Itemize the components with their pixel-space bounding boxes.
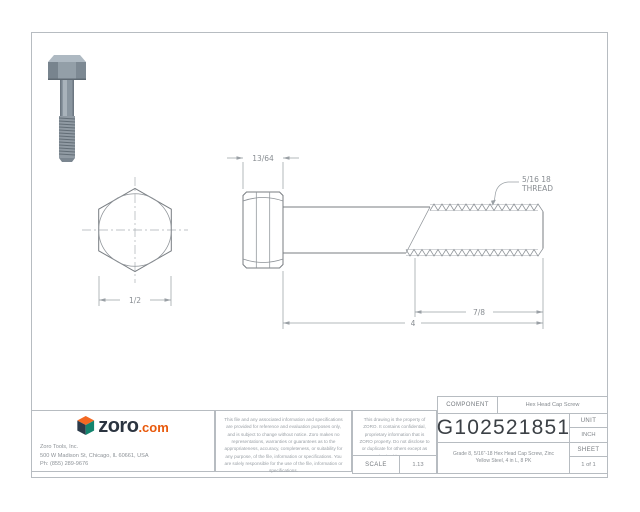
thread-callout-line1: 5/16 18	[522, 175, 551, 184]
scale-table: SCALE 1.13	[352, 455, 437, 474]
unit-value: INCH	[570, 428, 607, 443]
title-block: COMPONENT Hex Head Cap Screw G102521851 …	[437, 396, 608, 474]
sheet-label: SHEET	[570, 443, 607, 457]
hex-end-view	[82, 177, 188, 283]
company-street: 500 W Madison St, Chicago, IL 60661, USA	[40, 452, 149, 461]
bolt-side-view	[243, 192, 543, 268]
dimension-arrows	[99, 156, 543, 325]
logo-suffix: .com	[138, 420, 168, 436]
part-number: G102521851	[438, 414, 570, 443]
thread-runout	[406, 207, 430, 253]
dim-thread-length-label: 7/8	[473, 308, 485, 317]
zoro-logo: zoro .com	[77, 416, 169, 436]
company-name: Zoro Tools, Inc.	[40, 443, 149, 452]
dim-overall-length-label: 4	[411, 319, 416, 328]
sheet-value: 1 of 1	[570, 457, 607, 473]
dimension-text: 13/64 1/2 7/8 4 5/16 18 THREAD	[129, 154, 553, 328]
unit-label: UNIT	[570, 414, 607, 428]
scale-value: 1.13	[400, 456, 436, 473]
drawing-sheet: 13/64 1/2 7/8 4 5/16 18 THREAD zoro .com…	[0, 0, 640, 512]
company-phone: Ph: (855) 289-9676	[40, 460, 149, 469]
scale-label: SCALE	[353, 456, 400, 473]
head-outline	[243, 192, 283, 268]
disclaimer-property: This drawing is the property of ZORO. It…	[352, 410, 437, 455]
disclaimer-general: This file and any associated information…	[215, 410, 352, 472]
component-value: Hex Head Cap Screw	[498, 397, 607, 414]
component-label: COMPONENT	[438, 397, 498, 414]
part-description: Grade 8, 5/16"-18 Hex Head Cap Screw, Zi…	[438, 443, 570, 473]
zoro-logo-block: zoro .com Zoro Tools, Inc. 500 W Madison…	[31, 410, 215, 472]
dim-head-height-label: 13/64	[252, 154, 274, 163]
dim-across-flats-label: 1/2	[129, 296, 141, 305]
logo-text: zoro	[98, 416, 138, 436]
company-address: Zoro Tools, Inc. 500 W Madison St, Chica…	[40, 443, 149, 469]
technical-drawing: 13/64 1/2 7/8 4 5/16 18 THREAD	[0, 0, 640, 400]
dimensions	[99, 158, 543, 329]
thread-callout-line2: THREAD	[521, 184, 553, 193]
zoro-cube-icon	[77, 416, 94, 435]
